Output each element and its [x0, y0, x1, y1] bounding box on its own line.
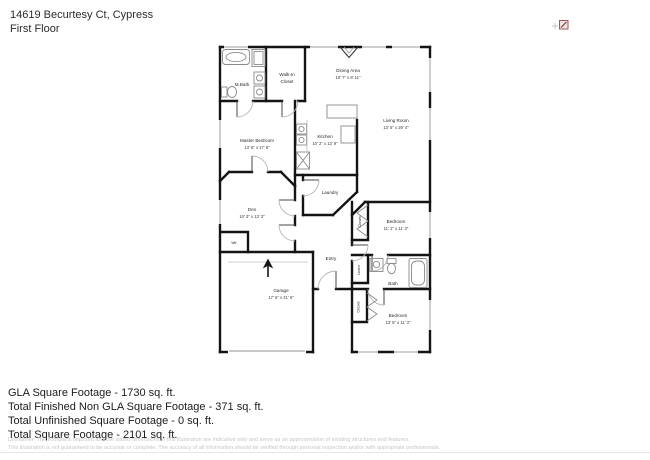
summary-line-unfinished: Total Unfinished Square Footage - 0 sq. …: [8, 414, 264, 428]
fridge-icon: [341, 126, 355, 143]
room-dims-kitchen: 10' 2" x 13' 9": [312, 141, 338, 146]
room-label-bedroom2: Bedroom: [389, 313, 408, 318]
room-label-kitchen: Kitchen: [317, 134, 333, 139]
room-dims-living: 13' 5" x 29' 4": [383, 125, 409, 130]
room-label-walkin-1: Walk-In: [279, 72, 295, 77]
room-label-master: Master Bedroom: [240, 138, 274, 143]
room-dims-garage: 17' 5" x 21' 6": [268, 295, 294, 300]
sink-icon: [254, 86, 265, 98]
room-dims-den: 10' 3" x 13' 3": [239, 214, 265, 219]
fixtures-layer: [222, 47, 428, 321]
room-dims-bedroom2: 13' 5" x 11' 3": [386, 320, 411, 325]
bottom-divider: [0, 452, 650, 453]
room-label-dining: Dining Area: [336, 68, 360, 73]
room-label-closet1: Closet: [357, 215, 362, 227]
kitchen-bar-counter: [327, 105, 357, 118]
disclaimer-line-2: This illustration is not guaranteed to b…: [8, 445, 440, 453]
square-footage-summary: GLA Square Footage - 1730 sq. ft. Total …: [8, 386, 264, 442]
north-arrow-icon: [263, 259, 273, 278]
labels-layer: M.Bath Walk-In Closet Dining Area 10' 7"…: [231, 68, 411, 325]
room-label-den: Den: [248, 207, 257, 212]
floorplan-page: 14619 Becurtesy Ct, Cypress First Floor: [0, 0, 650, 460]
disclaimer: Disclaimer: The floorplans depicted and …: [8, 437, 440, 452]
room-label-laundry: Laundry: [322, 190, 339, 195]
room-label-walkin-2: Closet: [280, 79, 294, 84]
bath-toilet-icon: [387, 259, 396, 264]
room-label-bedroom1: Bedroom: [387, 219, 406, 224]
toilet-icon: [222, 87, 228, 97]
room-label-garage: Garage: [273, 288, 289, 293]
room-label-mbath: M.Bath: [235, 82, 250, 87]
summary-line-gla: GLA Square Footage - 1730 sq. ft.: [8, 386, 264, 400]
room-label-entry: Entry: [326, 256, 337, 261]
bathtub-icon: [223, 50, 250, 65]
room-label-linen: Linen: [356, 265, 361, 275]
room-dims-dining: 10' 7" x 8' 11": [336, 75, 361, 80]
room-label-closet2: Closet: [356, 300, 361, 312]
room-dims-master: 13' 8" x 17' 8": [244, 145, 270, 150]
room-label-bath: Bath: [388, 281, 398, 286]
windows-layer: [220, 47, 430, 352]
room-dims-bedroom1: 11' 1" x 11' 3": [384, 226, 409, 231]
kitchen-sink-icon: [297, 135, 307, 145]
sink-icon: [254, 72, 265, 84]
disclaimer-line-1: Disclaimer: The floorplans depicted and …: [8, 437, 440, 445]
fireplace-icon: [340, 47, 358, 58]
bifold-doors-icon: [367, 293, 377, 321]
room-label-living: Living Room: [383, 118, 409, 123]
stove-icon: [297, 124, 307, 134]
room-label-wtr: Wtr: [231, 241, 237, 245]
walls-layer: [220, 47, 430, 352]
summary-line-non-gla: Total Finished Non GLA Square Footage - …: [8, 400, 264, 414]
